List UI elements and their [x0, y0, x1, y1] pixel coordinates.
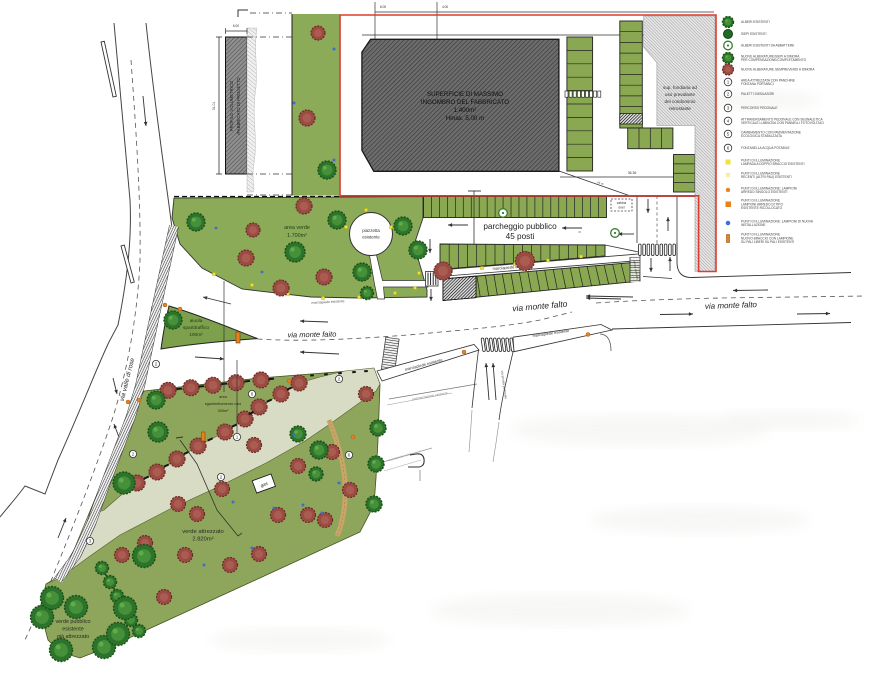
svg-text:NUOVE ALBERATURE SEMPREVERDI A: NUOVE ALBERATURE SEMPREVERDI A DIMORA — [741, 68, 815, 72]
svg-text:PERCORSO PEDONALE: PERCORSO PEDONALE — [741, 106, 778, 110]
svg-text:1.400m²: 1.400m² — [454, 107, 477, 114]
svg-text:PROFILO VOLUMETRICO: PROFILO VOLUMETRICO — [229, 80, 234, 131]
svg-text:già attrezzato: già attrezzato — [57, 634, 89, 640]
svg-text:verde pubblico: verde pubblico — [55, 619, 90, 625]
svg-text:4: 4 — [727, 119, 730, 124]
svg-text:6: 6 — [251, 392, 254, 397]
svg-text:31.01: 31.01 — [212, 102, 216, 111]
svg-text:Hmax. 5,00 m: Hmax. 5,00 m — [446, 115, 485, 122]
svg-text:area: area — [219, 395, 227, 399]
svg-text:via monte falto: via monte falto — [705, 300, 758, 311]
svg-text:FONTANELLA ACQUA POTABILE: FONTANELLA ACQUA POTABILE — [741, 146, 790, 150]
svg-text:ALBERI ESISTENTI DA ABBATTERE: ALBERI ESISTENTI DA ABBATTERE — [741, 44, 794, 48]
svg-text:100m²: 100m² — [189, 332, 203, 338]
svg-text:5: 5 — [727, 132, 730, 137]
svg-text:6.00: 6.00 — [233, 24, 239, 28]
svg-text:3: 3 — [727, 106, 730, 111]
svg-text:3: 3 — [89, 539, 92, 544]
svg-text:6: 6 — [348, 453, 351, 458]
svg-text:ALBERI ESISTENTI: ALBERI ESISTENTI — [741, 20, 770, 24]
svg-text:esistente: esistente — [62, 627, 84, 633]
svg-text:via monte falto: via monte falto — [512, 299, 568, 314]
svg-text:uso prevalante: uso prevalante — [665, 92, 696, 97]
svg-text:sup. fondiaria ad: sup. fondiaria ad — [663, 85, 697, 90]
svg-text:aiuola: aiuola — [190, 318, 203, 324]
svg-text:PALETTI DISSUASORI: PALETTI DISSUASORI — [741, 92, 774, 96]
svg-text:SUPERFICIE DI MASSIMO: SUPERFICIE DI MASSIMO — [427, 91, 503, 98]
svg-text:2: 2 — [155, 362, 158, 367]
svg-text:area verde: area verde — [284, 225, 310, 231]
svg-text:via privata pedonale: via privata pedonale — [500, 370, 508, 399]
svg-text:ECOLOGICA STABILIZZATA: ECOLOGICA STABILIZZATA — [741, 134, 783, 138]
svg-text:SU PALI LIBERI SU PALI ESISTEN: SU PALI LIBERI SU PALI ESISTENTI — [741, 240, 794, 244]
svg-text:parcheggio pubblico: parcheggio pubblico — [483, 222, 557, 231]
svg-text:INGOMBRO DEL FABBRICATO: INGOMBRO DEL FABBRICATO — [421, 99, 509, 106]
svg-text:del condominio: del condominio — [665, 99, 696, 104]
svg-text:retrostante: retrostante — [669, 106, 691, 111]
svg-text:PER COMPENSAZIONE/COMPLETAMENT: PER COMPENSAZIONE/COMPLETAMENTO — [741, 58, 807, 62]
svg-text:FONTANA PORTABICI: FONTANA PORTABICI — [741, 82, 774, 86]
svg-text:esistente: esistente — [362, 235, 380, 240]
svg-text:cabina: cabina — [617, 201, 627, 205]
svg-text:1: 1 — [236, 435, 239, 440]
svg-text:1.700m²: 1.700m² — [287, 233, 307, 239]
svg-text:300m²: 300m² — [218, 409, 229, 413]
svg-text:2: 2 — [220, 475, 223, 480]
svg-text:2: 2 — [727, 92, 730, 97]
svg-text:RECENTI (ALTRI PALI) ESISTENTI: RECENTI (ALTRI PALI) ESISTENTI — [741, 175, 792, 179]
svg-text:/FABBRICATO DI PROGETTO: /FABBRICATO DI PROGETTO — [236, 77, 241, 135]
svg-text:8.00: 8.00 — [380, 5, 386, 9]
svg-text:verde attrezzato: verde attrezzato — [182, 529, 224, 535]
svg-text:2: 2 — [132, 452, 135, 457]
svg-text:piazzetta: piazzetta — [362, 228, 380, 233]
svg-text:45 posti: 45 posti — [506, 232, 535, 241]
svg-text:1: 1 — [727, 80, 730, 85]
svg-text:sgambettamento cani: sgambettamento cani — [205, 402, 241, 406]
svg-text:2: 2 — [338, 377, 341, 382]
svg-text:LAMPADA A DOPPIO BRACCIO ESIST: LAMPADA A DOPPIO BRACCIO ESISTENTI — [741, 162, 805, 166]
svg-text:marciapiede esistente: marciapiede esistente — [311, 299, 344, 305]
svg-text:2.820m²: 2.820m² — [192, 537, 213, 543]
svg-text:spartitraffico: spartitraffico — [183, 325, 209, 331]
svg-text:ARREDO SINGOLO ESISTENTI: ARREDO SINGOLO ESISTENTI — [741, 190, 788, 194]
svg-text:INSTALLAZIONE: INSTALLAZIONE — [741, 223, 766, 227]
svg-text:4.00: 4.00 — [442, 5, 448, 9]
svg-text:ecomarciapiede esistente: ecomarciapiede esistente — [412, 391, 449, 401]
svg-text:6: 6 — [727, 146, 730, 151]
svg-text:via monte faito: via monte faito — [287, 330, 336, 340]
svg-text:VERTICALE LUMINOSA CON PANNELL: VERTICALE LUMINOSA CON PANNELLI FOTOVOLT… — [741, 121, 824, 125]
svg-text:5: 5 — [578, 231, 582, 233]
svg-text:SIEPI ESISTENTI: SIEPI ESISTENTI — [741, 32, 767, 36]
svg-text:ESISTENTE RICOLLOCATO: ESISTENTE RICOLLOCATO — [741, 206, 783, 210]
svg-text:36.36: 36.36 — [628, 171, 637, 175]
svg-text:enel: enel — [618, 206, 624, 210]
svg-text:marciapiede esist.: marciapiede esist. — [388, 452, 413, 463]
